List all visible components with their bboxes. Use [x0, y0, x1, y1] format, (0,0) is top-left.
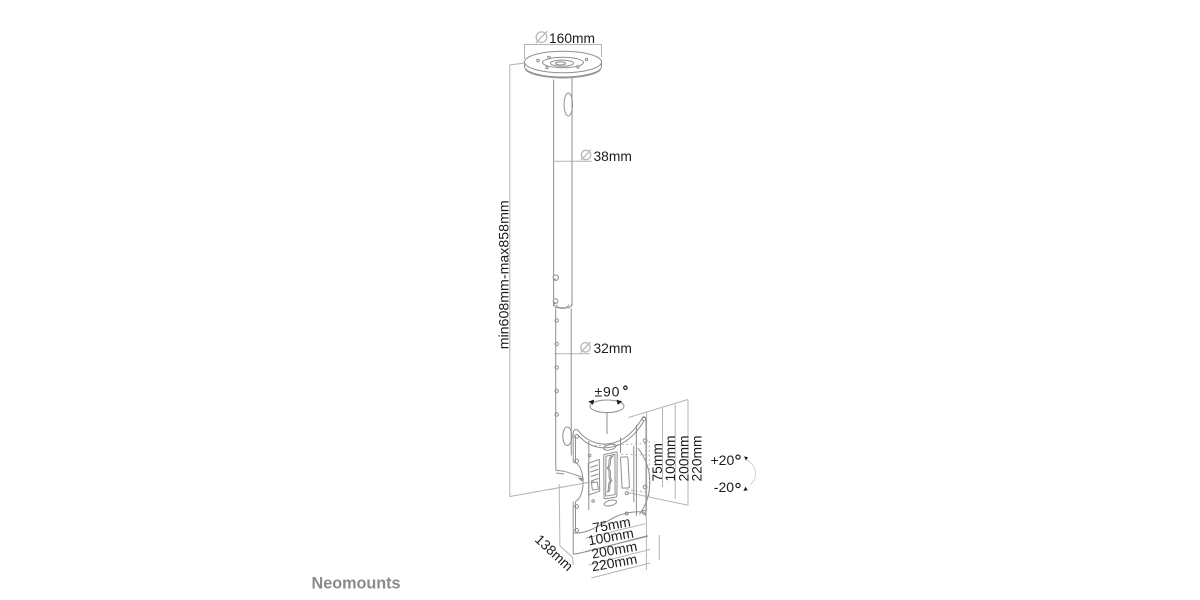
svg-text:min608mm-max858mm: min608mm-max858mm — [496, 200, 512, 349]
svg-text:160mm: 160mm — [549, 31, 595, 46]
svg-text:220mm: 220mm — [689, 435, 704, 481]
svg-text:-20: -20 — [714, 479, 734, 495]
svg-text:32mm: 32mm — [594, 341, 632, 356]
svg-text:Neomounts: Neomounts — [312, 574, 401, 592]
svg-text:±90: ±90 — [595, 383, 621, 399]
svg-text:+20: +20 — [711, 452, 735, 468]
svg-text:38mm: 38mm — [594, 149, 632, 164]
